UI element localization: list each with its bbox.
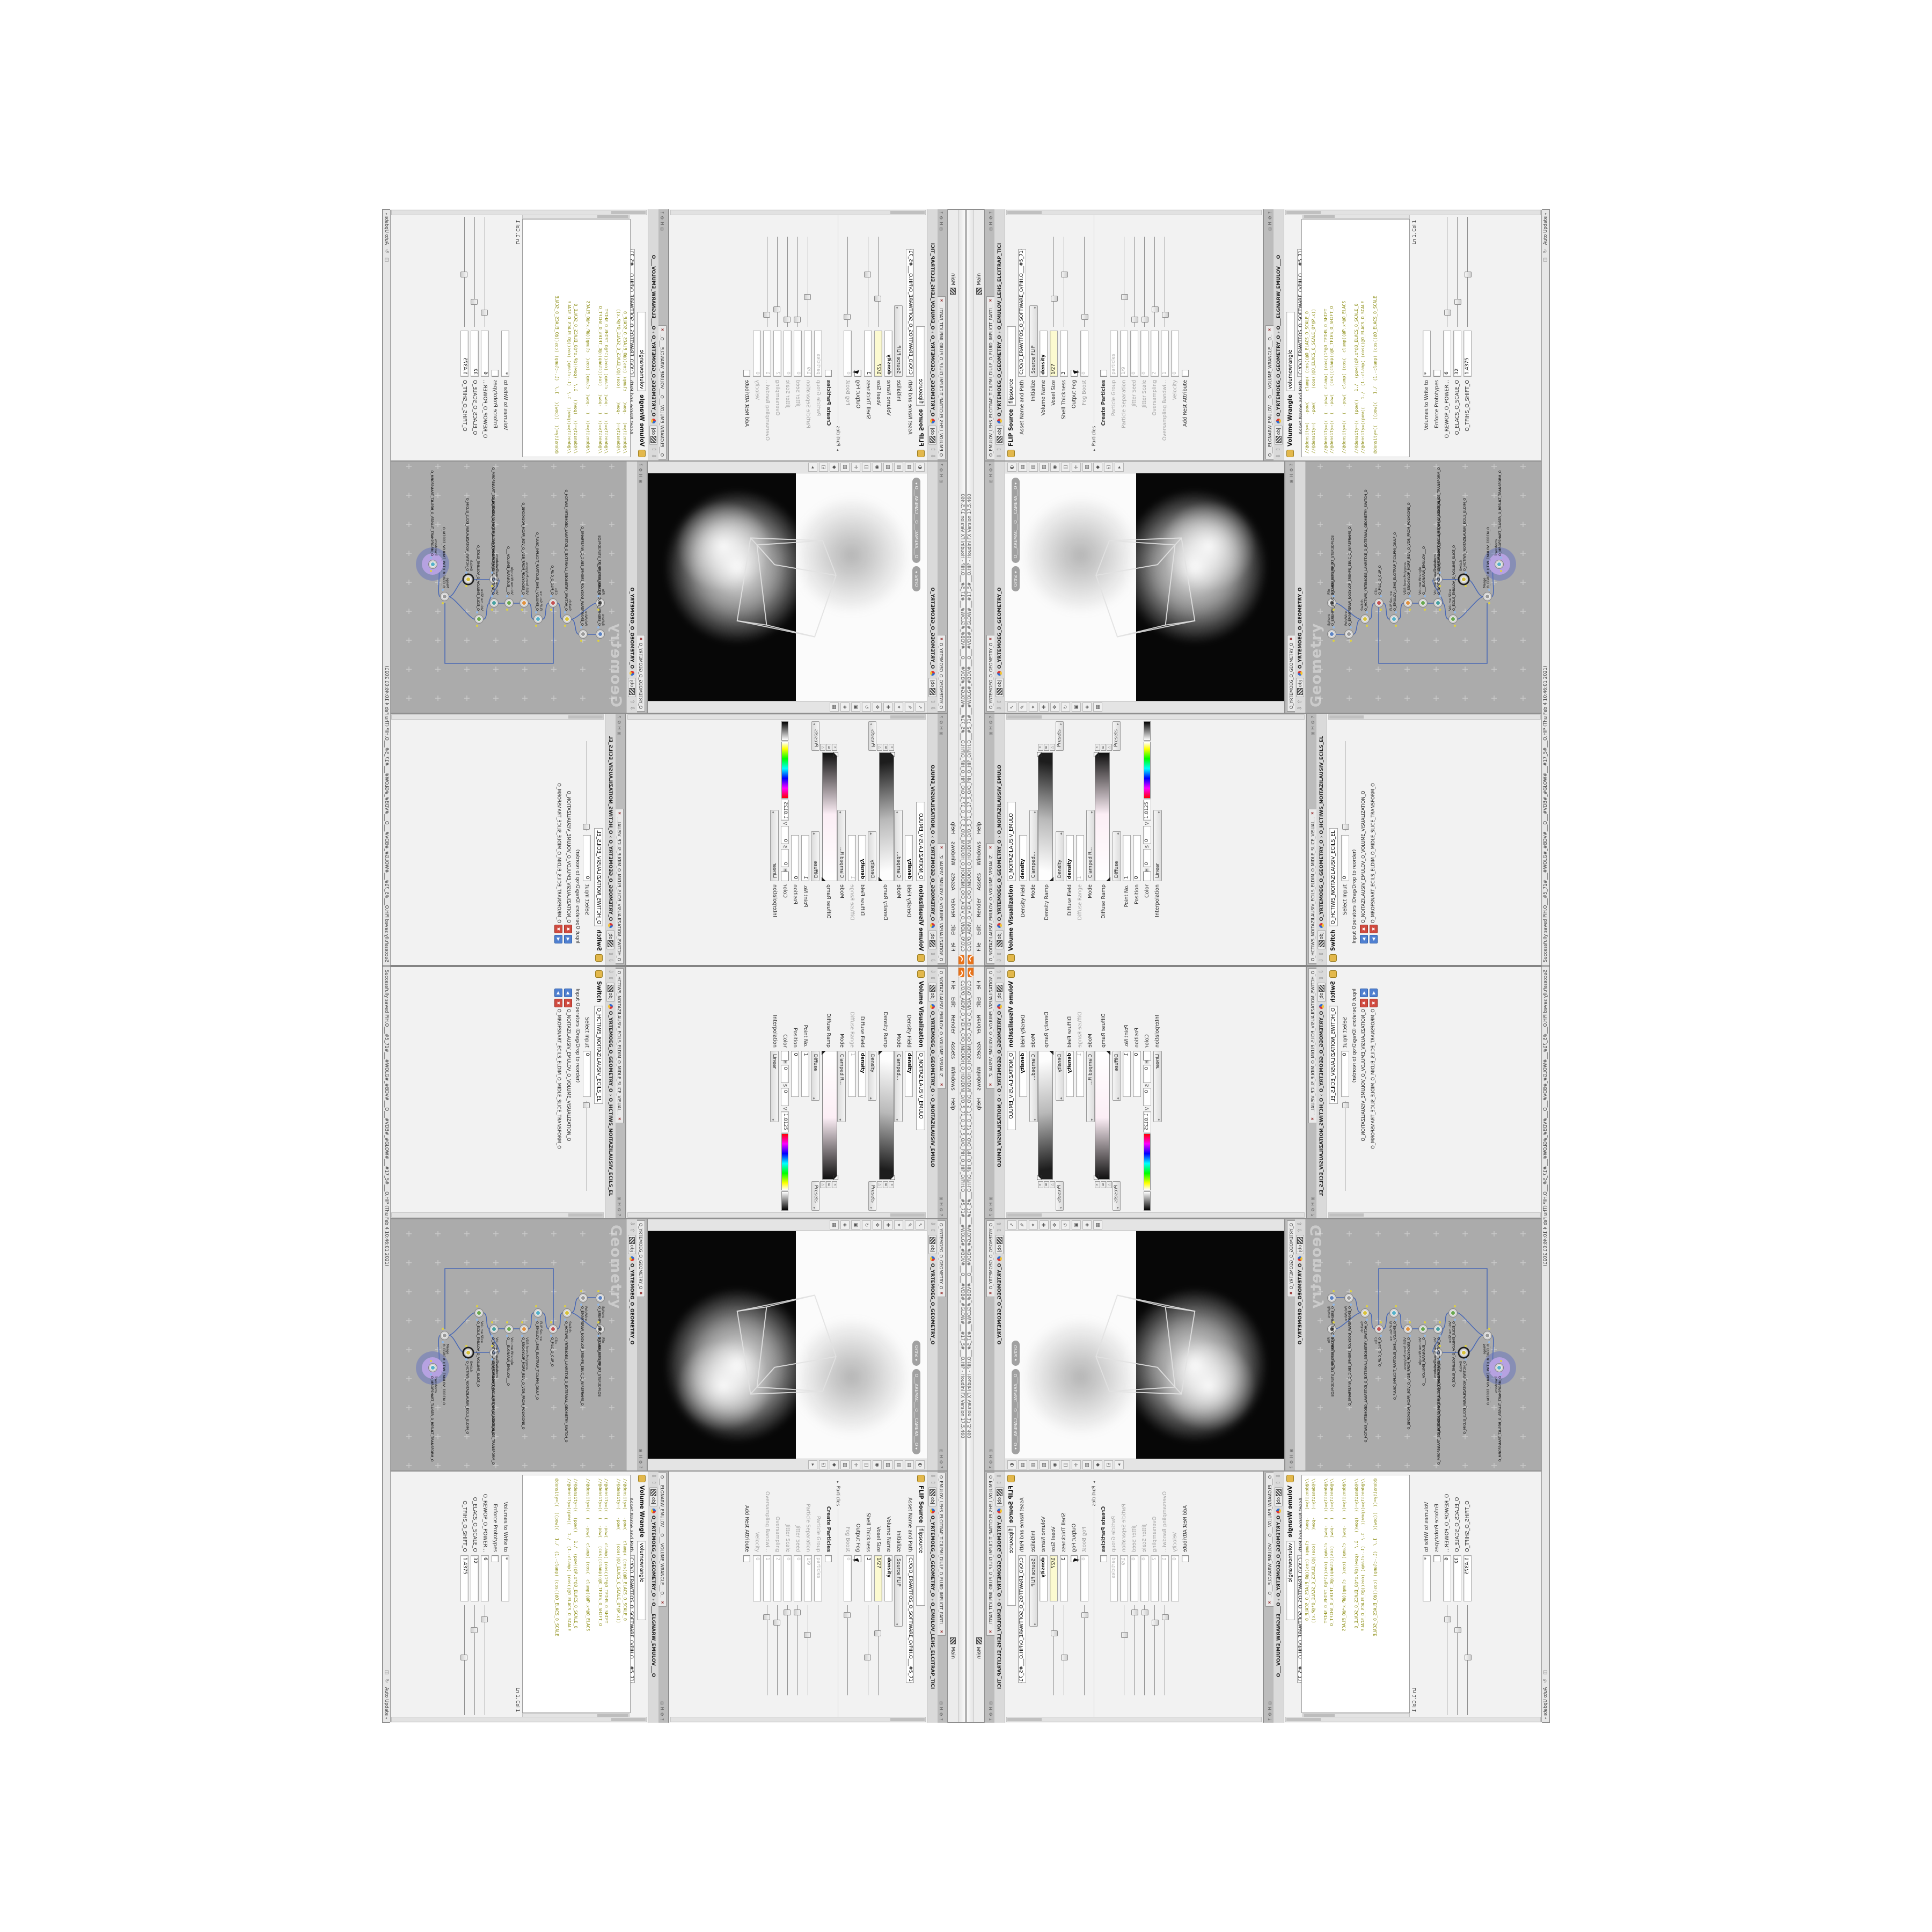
flip-checkbox-7[interactable] bbox=[1100, 370, 1107, 377]
slider-handle[interactable] bbox=[460, 272, 467, 277]
network-node-5[interactable] bbox=[1389, 1308, 1399, 1318]
context-chip[interactable]: obj bbox=[649, 1487, 657, 1506]
flip-field-3[interactable]: 3 bbox=[1060, 1555, 1068, 1601]
wrangle-node-name-field[interactable]: volumewrangle bbox=[1286, 312, 1295, 391]
slider-handle[interactable] bbox=[1162, 1614, 1169, 1620]
node-flag-right[interactable] bbox=[550, 595, 552, 597]
ramp-point-marker[interactable] bbox=[879, 877, 883, 881]
slider-handle[interactable] bbox=[1081, 314, 1088, 320]
gear-icon[interactable]: ⚙ bbox=[939, 720, 943, 724]
node-flag-left[interactable] bbox=[1380, 609, 1382, 611]
reorder-arrow-icon[interactable]: ◀ bbox=[1360, 989, 1368, 997]
node-flag-left[interactable] bbox=[564, 625, 566, 627]
help-icon[interactable]: ? bbox=[638, 464, 643, 466]
rotate-tool-icon[interactable]: ↻ bbox=[862, 1220, 871, 1230]
wrangle-slider-2[interactable] bbox=[1444, 217, 1451, 327]
node-flag-right[interactable] bbox=[1333, 1304, 1335, 1306]
viz-ramp-basis-3[interactable]: Density bbox=[1056, 831, 1064, 881]
split-pane-icon[interactable]: ⊞ bbox=[989, 1449, 993, 1453]
nav-up-icon[interactable]: ⇧ bbox=[930, 1228, 935, 1232]
rotate-tool-icon[interactable]: ↻ bbox=[862, 702, 871, 712]
network-node-8[interactable] bbox=[489, 598, 499, 608]
network-tab[interactable]: O_YRTEMOEG_O_GEOMETRY_O✖ bbox=[637, 635, 645, 712]
viz-ramp-basis-8[interactable]: Diffuse bbox=[1113, 1051, 1121, 1101]
gear-icon[interactable]: ⚙ bbox=[939, 1713, 943, 1716]
help-icon[interactable]: ? bbox=[1289, 1466, 1294, 1468]
rotate-tool-icon[interactable]: ↻ bbox=[1061, 702, 1070, 712]
network-node-8[interactable] bbox=[489, 1324, 499, 1334]
grid-toggle-icon[interactable]: ◫ bbox=[1061, 463, 1070, 472]
node-flag-left[interactable] bbox=[521, 609, 523, 611]
network-node-6[interactable] bbox=[1403, 1324, 1413, 1334]
hue-bar[interactable] bbox=[1144, 1133, 1151, 1190]
viewport-canvas[interactable]: Ortho ▾O___AREMAC___O___CAMERA___O ▾ bbox=[648, 1231, 927, 1459]
nav-down-icon[interactable]: ⇩ bbox=[930, 1474, 935, 1478]
slider-handle[interactable] bbox=[864, 1655, 871, 1660]
close-icon[interactable]: ✖ bbox=[639, 1291, 643, 1294]
menu-windows[interactable]: Windows bbox=[976, 1066, 982, 1091]
context-chip[interactable]: obj bbox=[996, 983, 1004, 1002]
snap-tool-icon[interactable]: ▦ bbox=[1093, 1220, 1102, 1230]
grid-toggle-icon[interactable]: ◫ bbox=[862, 1460, 871, 1469]
ramp-button-0[interactable]: ✕ bbox=[1095, 744, 1100, 751]
flip-checkbox-15[interactable] bbox=[743, 370, 750, 377]
houdini-pane-icon[interactable]: H bbox=[939, 222, 943, 225]
node-flag-left[interactable] bbox=[1465, 1345, 1467, 1347]
wrangle-checkbox-1[interactable] bbox=[492, 370, 499, 377]
split-pane-icon[interactable]: ⊞ bbox=[1311, 731, 1315, 735]
flip-slider-11[interactable] bbox=[784, 237, 791, 327]
houdini-pane-icon[interactable]: H bbox=[638, 1455, 643, 1458]
ramp-point-marker[interactable] bbox=[1106, 1051, 1110, 1055]
split-pane-icon[interactable]: ⊞ bbox=[939, 227, 943, 231]
flip-checkbox-15[interactable] bbox=[1182, 1555, 1189, 1562]
menu-file[interactable]: File bbox=[950, 942, 956, 952]
flip-field-13[interactable]: 1 bbox=[1161, 331, 1169, 377]
network-node-4[interactable] bbox=[548, 1324, 558, 1334]
network-node-13[interactable] bbox=[1495, 560, 1504, 569]
viz-ramp-2[interactable] bbox=[879, 752, 894, 881]
context-chip[interactable]: obj bbox=[996, 930, 1004, 949]
node-flag-right[interactable] bbox=[1380, 595, 1382, 597]
node-flag-left[interactable] bbox=[1439, 1321, 1441, 1323]
ramp-button-2[interactable]: △ bbox=[820, 744, 825, 751]
material-toggle-icon[interactable]: ▧ bbox=[1040, 1460, 1049, 1469]
slider-handle[interactable] bbox=[1061, 1655, 1068, 1660]
node-flag-left[interactable] bbox=[550, 1321, 552, 1323]
volume-quality-icon[interactable]: ▨ bbox=[1082, 463, 1092, 472]
flip-field-1[interactable]: density bbox=[1040, 331, 1048, 377]
close-icon[interactable]: ✖ bbox=[989, 846, 993, 849]
desktop-selector[interactable]: Main bbox=[950, 1637, 956, 1659]
viz-ramp-2[interactable] bbox=[1038, 752, 1053, 881]
flip-tab[interactable]: O_EMULOV_LEHS_ELCITRAP_TICILPMI_DIULF_O_… bbox=[938, 1473, 946, 1636]
close-icon[interactable]: ✖ bbox=[939, 1630, 943, 1633]
node-flag-right[interactable] bbox=[1395, 1319, 1397, 1321]
node-flag-left[interactable] bbox=[580, 1290, 582, 1292]
ramp-button-1[interactable]: ⊞ bbox=[1101, 744, 1106, 751]
split-pane-icon[interactable]: ⊞ bbox=[617, 1197, 621, 1201]
nav-down-icon[interactable]: ⇩ bbox=[930, 1221, 935, 1226]
flip-slider-11[interactable] bbox=[1141, 1605, 1148, 1695]
node-flag-right[interactable] bbox=[491, 595, 493, 597]
node-flag-right[interactable] bbox=[465, 572, 467, 574]
split-pane-icon[interactable]: ⊞ bbox=[1289, 1449, 1294, 1453]
flip-field-12[interactable]: 2 bbox=[1151, 1555, 1159, 1601]
menu-edit[interactable]: Edit bbox=[950, 997, 956, 1007]
menu-file[interactable]: File bbox=[976, 980, 982, 990]
flip-slider-10[interactable] bbox=[1131, 237, 1138, 327]
node-flag-left[interactable] bbox=[1424, 609, 1426, 611]
volume-quality-icon[interactable]: ▨ bbox=[840, 463, 850, 472]
viz-dropdown-12[interactable]: Linear bbox=[771, 1051, 779, 1122]
flip-asset-path[interactable]: C:/O/O_ERAWTFOS_O_SOFTWARE_O/PIH.O___#5_… bbox=[1018, 1555, 1026, 1683]
switch-select-input-field[interactable]: 0 bbox=[1341, 835, 1349, 881]
node-flag-right[interactable] bbox=[550, 1335, 552, 1337]
switch-scrollbar[interactable] bbox=[1328, 1212, 1541, 1218]
node-flag-right[interactable] bbox=[1350, 626, 1352, 628]
close-icon[interactable]: ✖ bbox=[989, 638, 993, 641]
wrangle-checkbox-1[interactable] bbox=[1433, 370, 1440, 377]
viz-field-4[interactable]: density bbox=[858, 1051, 866, 1097]
viz-ramp-7[interactable] bbox=[1095, 752, 1110, 881]
handles-tool-icon[interactable]: ✚ bbox=[1040, 702, 1049, 712]
node-flag-left[interactable] bbox=[535, 1305, 537, 1307]
flip-field-11[interactable]: 0 bbox=[1140, 331, 1148, 377]
viz-field-10[interactable]: 0 bbox=[1133, 835, 1141, 881]
network-node-1[interactable] bbox=[1344, 1293, 1353, 1302]
ramp-button-1[interactable]: ⊞ bbox=[826, 744, 831, 751]
gear-icon[interactable]: ⚙ bbox=[1311, 720, 1315, 724]
view-mode-pill[interactable]: Ortho ▾ bbox=[1012, 566, 1020, 591]
slider-handle[interactable] bbox=[583, 824, 590, 830]
wrangle-slider-4[interactable] bbox=[461, 217, 468, 327]
flip-field-12[interactable]: 2 bbox=[773, 1555, 781, 1601]
hue-field[interactable]: 0 bbox=[1143, 849, 1151, 867]
viewport-canvas[interactable]: Ortho ▾O___AREMAC___O___CAMERA___O ▾ bbox=[648, 473, 927, 701]
node-flag-right[interactable] bbox=[430, 557, 432, 559]
node-flag-left[interactable] bbox=[465, 585, 467, 587]
flip-asset-path[interactable]: C:/O/O_ERAWTFOS_O_SOFTWARE_O/PIH.O___#5_… bbox=[1018, 249, 1026, 377]
update-mode-selector[interactable]: Auto Update bbox=[1543, 1687, 1548, 1719]
node-flag-left[interactable] bbox=[1350, 640, 1352, 642]
wrangle-field-0[interactable]: * bbox=[1423, 331, 1431, 377]
gear-icon[interactable]: ⚙ bbox=[660, 216, 664, 219]
node-flag-right[interactable] bbox=[491, 1335, 493, 1337]
ramp-button-0[interactable]: ✕ bbox=[889, 1181, 894, 1188]
network-node-9[interactable] bbox=[1448, 614, 1458, 624]
ramp-button-0[interactable]: ✕ bbox=[1038, 744, 1043, 751]
nav-up-icon[interactable]: ⇧ bbox=[930, 952, 935, 956]
flip-field-3[interactable]: 3 bbox=[1060, 331, 1068, 377]
node-flag-left[interactable] bbox=[1454, 1305, 1456, 1307]
viz-field-5[interactable]: 1 bbox=[1076, 1051, 1084, 1097]
flip-slider-2[interactable] bbox=[875, 1605, 882, 1695]
wrangle-scrollbar[interactable] bbox=[1285, 210, 1541, 215]
grid-toggle-icon[interactable]: ◫ bbox=[1061, 1460, 1070, 1469]
smooth-shade-icon[interactable]: ▥ bbox=[1029, 463, 1038, 472]
node-flag-right[interactable] bbox=[564, 1319, 566, 1321]
context-chip[interactable]: obj bbox=[606, 930, 614, 949]
switch-select-input-field[interactable]: 0 bbox=[583, 1051, 591, 1097]
nav-up-icon[interactable]: ⇧ bbox=[997, 1480, 1002, 1484]
node-flag-left[interactable] bbox=[564, 1305, 566, 1307]
close-icon[interactable]: ✖ bbox=[1289, 1291, 1293, 1294]
ramp-button-0[interactable]: ✕ bbox=[832, 1181, 837, 1188]
flip-scrollbar[interactable] bbox=[670, 1717, 926, 1722]
display-options-icon[interactable]: ◆ bbox=[830, 1460, 839, 1469]
context-chip[interactable]: obj bbox=[628, 1235, 636, 1254]
network-tab[interactable]: O_YRTEMOEG_O_GEOMETRY_O✖ bbox=[1287, 635, 1295, 712]
nav-down-icon[interactable]: ⇩ bbox=[608, 969, 613, 974]
network-node-7[interactable] bbox=[1418, 1324, 1428, 1334]
cook-refresh-icon[interactable]: ↻ bbox=[1543, 1679, 1548, 1683]
network-node-8[interactable] bbox=[1433, 598, 1443, 608]
camera-lock-icon[interactable]: ◱ bbox=[1104, 1460, 1113, 1469]
slider-handle[interactable] bbox=[784, 317, 791, 323]
node-flag-right[interactable] bbox=[1409, 595, 1411, 597]
close-icon[interactable]: ✖ bbox=[989, 1630, 993, 1633]
network-node-11[interactable] bbox=[1459, 575, 1468, 584]
wireframe-toggle-icon[interactable]: ▤ bbox=[905, 1460, 914, 1469]
translate-tool-icon[interactable]: ✥ bbox=[873, 702, 882, 712]
wrangle-scrollbar[interactable] bbox=[391, 1717, 647, 1722]
ramp-button-0[interactable]: ✕ bbox=[1038, 1181, 1043, 1188]
context-chip[interactable]: obj bbox=[996, 426, 1004, 445]
houdini-pane-icon[interactable]: H bbox=[989, 474, 993, 477]
val-field[interactable]: 1.8125 bbox=[781, 1111, 789, 1133]
viz-tab[interactable]: O_NOITAZILAUSIV_EMULOV_O_VOLUME_VISUALIZ… bbox=[938, 843, 946, 964]
gear-icon[interactable]: ⚙ bbox=[1311, 1208, 1315, 1212]
remove-input-icon[interactable]: ✖ bbox=[555, 925, 563, 933]
flip-field-8[interactable]: particles bbox=[1110, 331, 1118, 377]
shading-mode-icon[interactable]: ◐ bbox=[916, 1460, 925, 1469]
wrangle-field-2[interactable]: 6 bbox=[481, 1555, 489, 1601]
ramp-button-1[interactable]: ⊞ bbox=[883, 1181, 888, 1188]
wrangle-checkbox-1[interactable] bbox=[492, 1555, 499, 1562]
viz-field-9[interactable]: 1 bbox=[801, 835, 809, 881]
help-icon[interactable]: ? bbox=[617, 1214, 621, 1216]
network-node-7[interactable] bbox=[504, 1324, 514, 1334]
nav-down-icon[interactable]: ⇩ bbox=[930, 969, 935, 974]
nav-down-icon[interactable]: ⇩ bbox=[930, 706, 935, 711]
network-node-9[interactable] bbox=[474, 1308, 484, 1318]
grid-toggle-icon[interactable]: ◫ bbox=[862, 463, 871, 472]
flip-checkbox-7[interactable] bbox=[1100, 1555, 1107, 1562]
help-icon[interactable]: ? bbox=[989, 1214, 993, 1216]
flip-asset-path[interactable]: C:/O/O_ERAWTFOS_O_SOFTWARE_O/PIH.O___#5_… bbox=[906, 249, 914, 377]
flip-field-13[interactable]: 1 bbox=[1161, 1555, 1169, 1601]
node-flag-right[interactable] bbox=[1439, 1335, 1441, 1337]
split-pane-icon[interactable]: ⊞ bbox=[1268, 1701, 1272, 1705]
nav-up-icon[interactable]: ⇧ bbox=[930, 1480, 935, 1484]
network-node-11[interactable] bbox=[464, 575, 473, 584]
node-flag-right[interactable] bbox=[1439, 1358, 1441, 1360]
cook-refresh-icon[interactable]: ↻ bbox=[384, 249, 389, 253]
nav-up-icon[interactable]: ⇧ bbox=[930, 447, 935, 451]
nav-down-icon[interactable]: ⇩ bbox=[997, 706, 1002, 711]
remove-input-icon[interactable]: ✖ bbox=[555, 999, 563, 1007]
flip-field-10[interactable]: 0 bbox=[794, 1555, 802, 1601]
node-flag-left[interactable] bbox=[597, 1321, 599, 1323]
network-node-3[interactable] bbox=[1360, 614, 1370, 624]
node-flag-right[interactable] bbox=[535, 611, 537, 613]
slider-handle[interactable] bbox=[471, 1627, 478, 1633]
menu-assets[interactable]: Assets bbox=[950, 873, 956, 891]
shading-mode-icon[interactable]: ◐ bbox=[1007, 463, 1016, 472]
sat-field[interactable]: 0 bbox=[781, 826, 789, 844]
viewport-tab[interactable]: O_YRTEMOEG_O_GEOMETRY_O✖ bbox=[986, 635, 994, 712]
gear-icon[interactable]: ⚙ bbox=[989, 216, 993, 219]
nav-up-icon[interactable]: ⇧ bbox=[930, 976, 935, 980]
node-flag-left[interactable] bbox=[550, 609, 552, 611]
viewport-canvas[interactable]: Ortho ▾O___AREMAC___O___CAMERA___O ▾ bbox=[1005, 1231, 1284, 1459]
ramp-button-0[interactable]: ✕ bbox=[1095, 1181, 1100, 1188]
node-flag-right[interactable] bbox=[1409, 1335, 1411, 1337]
menu-help[interactable]: Help bbox=[976, 822, 982, 834]
split-pane-icon[interactable]: ⊞ bbox=[939, 479, 943, 483]
translate-tool-icon[interactable]: ✥ bbox=[1050, 1220, 1059, 1230]
slider-handle[interactable] bbox=[481, 310, 488, 316]
houdini-pane-icon[interactable]: H bbox=[1311, 726, 1315, 729]
ramp-button-2[interactable]: △ bbox=[877, 1181, 882, 1188]
context-chip[interactable]: obj bbox=[1318, 930, 1326, 949]
ramp-point-marker[interactable] bbox=[1037, 1175, 1042, 1180]
node-flag-right[interactable] bbox=[1439, 595, 1441, 597]
wrangle-field-4[interactable]: 1.4375 bbox=[460, 1555, 469, 1601]
nav-up-icon[interactable]: ⇧ bbox=[930, 699, 935, 704]
flip-section-6[interactable]: ▸Particles bbox=[833, 1472, 843, 1723]
help-icon[interactable]: ? bbox=[660, 1718, 664, 1721]
flip-slider-13[interactable] bbox=[764, 1605, 771, 1695]
display-options-icon[interactable]: ◆ bbox=[1093, 463, 1102, 472]
node-flag-left[interactable] bbox=[1395, 1305, 1397, 1307]
nav-up-icon[interactable]: ⇧ bbox=[1298, 1228, 1303, 1232]
camera-selector-pill[interactable]: O___AREMAC___O___CAMERA___O ▾ bbox=[912, 478, 920, 563]
flip-slider-12[interactable] bbox=[1151, 237, 1158, 327]
menu-assets[interactable]: Assets bbox=[976, 873, 982, 891]
network-node-4[interactable] bbox=[1374, 598, 1384, 608]
node-flag-right[interactable] bbox=[1465, 572, 1467, 574]
camera-lock-icon[interactable]: ◱ bbox=[819, 463, 828, 472]
viz-dropdown-6[interactable]: Clamped R... bbox=[1086, 1051, 1095, 1122]
node-flag-right[interactable] bbox=[597, 595, 599, 597]
network-tab[interactable]: O_YRTEMOEG_O_GEOMETRY_O✖ bbox=[1287, 1220, 1295, 1297]
node-flag-left[interactable] bbox=[465, 1345, 467, 1347]
remove-input-icon[interactable]: ✖ bbox=[565, 999, 573, 1007]
viz-field-10[interactable]: 0 bbox=[791, 1051, 799, 1097]
smooth-shade-icon[interactable]: ▥ bbox=[894, 1460, 903, 1469]
network-node-7[interactable] bbox=[504, 598, 514, 608]
wrangle-slider-3[interactable] bbox=[1454, 217, 1461, 327]
vex-code-editor[interactable]: //@density=( -pow( clamp( (cos((@O_ELACS… bbox=[522, 1475, 631, 1713]
shading-mode-icon[interactable]: ◐ bbox=[916, 463, 925, 472]
help-icon[interactable]: ? bbox=[989, 716, 993, 718]
wrangle-field-4[interactable]: 1.4375 bbox=[1463, 1555, 1472, 1601]
help-icon[interactable]: ? bbox=[939, 1466, 943, 1468]
camera-selector-pill[interactable]: O___AREMAC___O___CAMERA___O ▾ bbox=[912, 1369, 920, 1454]
close-icon[interactable]: ✖ bbox=[660, 1601, 664, 1604]
gear-icon[interactable]: ⚙ bbox=[1289, 468, 1294, 472]
material-toggle-icon[interactable]: ▧ bbox=[883, 463, 892, 472]
node-flag-left[interactable] bbox=[442, 1328, 444, 1330]
node-flag-left[interactable] bbox=[1500, 570, 1502, 572]
nav-up-icon[interactable]: ⇧ bbox=[997, 952, 1002, 956]
node-flag-right[interactable] bbox=[1333, 1335, 1335, 1337]
viz-node-name-field[interactable]: O_NOITAZILAUSIV_EMULO bbox=[1007, 1051, 1016, 1130]
switch-scrollbar[interactable] bbox=[391, 1212, 604, 1218]
slider-handle[interactable] bbox=[1121, 294, 1128, 300]
node-flag-right[interactable] bbox=[1454, 611, 1456, 613]
flip-field-8[interactable]: particles bbox=[1110, 1555, 1118, 1601]
switch-select-input-field[interactable]: 0 bbox=[1341, 1051, 1349, 1097]
remove-input-icon[interactable]: ✖ bbox=[1360, 999, 1368, 1007]
flip-field-2[interactable]: 1/27 bbox=[874, 1555, 882, 1601]
menu-file[interactable]: File bbox=[976, 942, 982, 952]
viz-ramp-7[interactable] bbox=[822, 1051, 837, 1180]
slider-handle[interactable] bbox=[794, 317, 801, 323]
select-tool-icon[interactable]: ↖ bbox=[916, 702, 925, 712]
edit-tool-icon[interactable]: ✎ bbox=[905, 702, 914, 712]
viz-field-10[interactable]: 0 bbox=[1133, 1051, 1141, 1097]
nav-down-icon[interactable]: ⇩ bbox=[1298, 1221, 1303, 1226]
context-chip[interactable]: obj bbox=[649, 426, 657, 445]
select-tool-icon[interactable]: ↖ bbox=[1007, 702, 1016, 712]
ramp-point-marker[interactable] bbox=[833, 1175, 838, 1180]
wrangle-checkbox-1[interactable] bbox=[1433, 1555, 1440, 1562]
help-icon[interactable]: ? bbox=[939, 211, 943, 214]
flip-slider-3[interactable] bbox=[865, 1605, 872, 1695]
nav-up-icon[interactable]: ⇧ bbox=[608, 976, 613, 980]
slider-handle[interactable] bbox=[874, 296, 881, 302]
menu-render[interactable]: Render bbox=[976, 1015, 982, 1034]
node-flag-right[interactable] bbox=[1488, 1341, 1490, 1343]
menu-assets[interactable]: Assets bbox=[950, 1042, 956, 1059]
flip-tab[interactable]: O_EMULOV_LEHS_ELCITRAP_TICILPMI_DIULF_O_… bbox=[938, 296, 946, 459]
shading-mode-icon[interactable]: ◐ bbox=[1007, 1460, 1016, 1469]
lighting-toggle-icon[interactable]: ◉ bbox=[1050, 1460, 1059, 1469]
node-flag-right[interactable] bbox=[1500, 557, 1502, 559]
node-flag-right[interactable] bbox=[1424, 1335, 1426, 1337]
viz-field-0[interactable]: density bbox=[1019, 1051, 1027, 1097]
scale-tool-icon[interactable]: ▣ bbox=[1072, 702, 1081, 712]
snap-tool-icon[interactable]: ▦ bbox=[1093, 702, 1102, 712]
hue-field[interactable]: 0 bbox=[781, 849, 789, 867]
slider-handle[interactable] bbox=[1444, 1616, 1451, 1622]
flip-node-name-field[interactable]: flipsource bbox=[1007, 326, 1016, 406]
viz-scrollbar[interactable] bbox=[1006, 1212, 1305, 1218]
wrangle-tab[interactable]: O___ELGNARW_EMULOV___O___VOLUME_WRANGLE_… bbox=[658, 1473, 667, 1607]
gear-icon[interactable]: ⚙ bbox=[638, 468, 643, 472]
network-node-3[interactable] bbox=[562, 614, 572, 624]
vex-code-editor[interactable]: //@density=( -pow( clamp( (cos((@O_ELACS… bbox=[1301, 1475, 1410, 1713]
wrangle-slider-4[interactable] bbox=[1464, 1605, 1471, 1715]
flip-field-5[interactable]: 0 bbox=[1080, 1555, 1088, 1601]
nav-up-icon[interactable]: ⇧ bbox=[630, 699, 635, 704]
viz-ramp-basis-3[interactable]: Density bbox=[1056, 1051, 1064, 1101]
viz-ramp-2[interactable] bbox=[1038, 1051, 1053, 1180]
viz-field-9[interactable]: 1 bbox=[801, 1051, 809, 1097]
switch-select-input-slider[interactable] bbox=[583, 741, 590, 831]
viz-ramp-basis-3[interactable]: Density bbox=[868, 1051, 877, 1101]
viz-field-10[interactable]: 0 bbox=[791, 835, 799, 881]
pose-tool-icon[interactable]: ◈ bbox=[840, 1220, 850, 1230]
wrangle-slider-3[interactable] bbox=[471, 1605, 478, 1715]
ramp-point-marker[interactable] bbox=[1037, 752, 1042, 757]
flip-field-1[interactable]: density bbox=[884, 331, 892, 377]
flip-field-8[interactable]: particles bbox=[814, 331, 822, 377]
flip-slider-2[interactable] bbox=[875, 237, 882, 327]
